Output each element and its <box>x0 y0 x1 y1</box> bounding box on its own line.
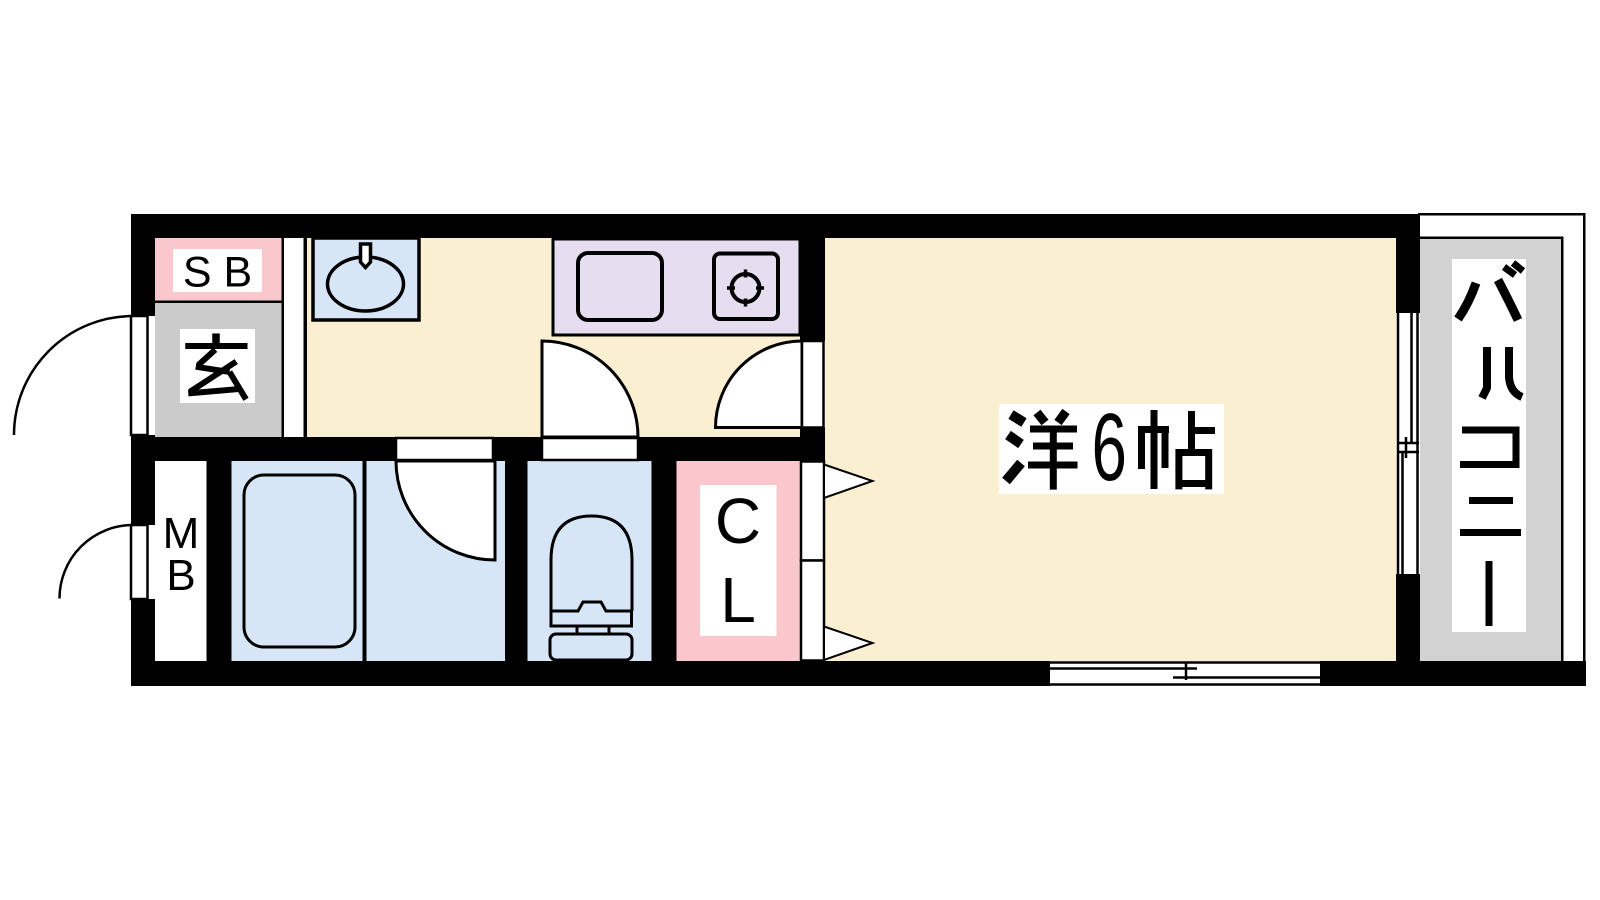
svg-text:S B: S B <box>183 249 252 297</box>
svg-text:L: L <box>720 564 756 636</box>
svg-text:C: C <box>715 485 761 557</box>
svg-text:6: 6 <box>1092 394 1127 501</box>
svg-text:B: B <box>166 551 195 600</box>
